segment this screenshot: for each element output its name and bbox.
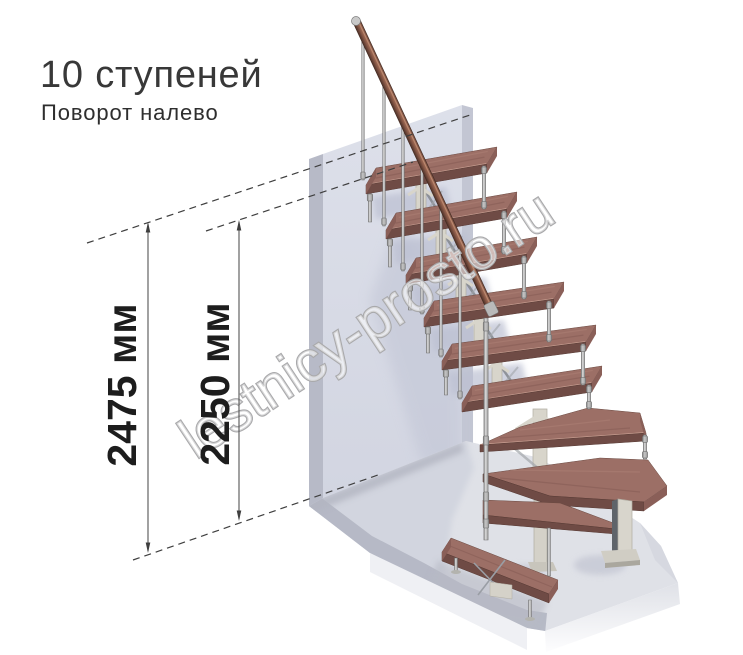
svg-text:2475 мм: 2475 мм — [99, 303, 145, 466]
svg-text:2250 мм: 2250 мм — [192, 302, 238, 465]
